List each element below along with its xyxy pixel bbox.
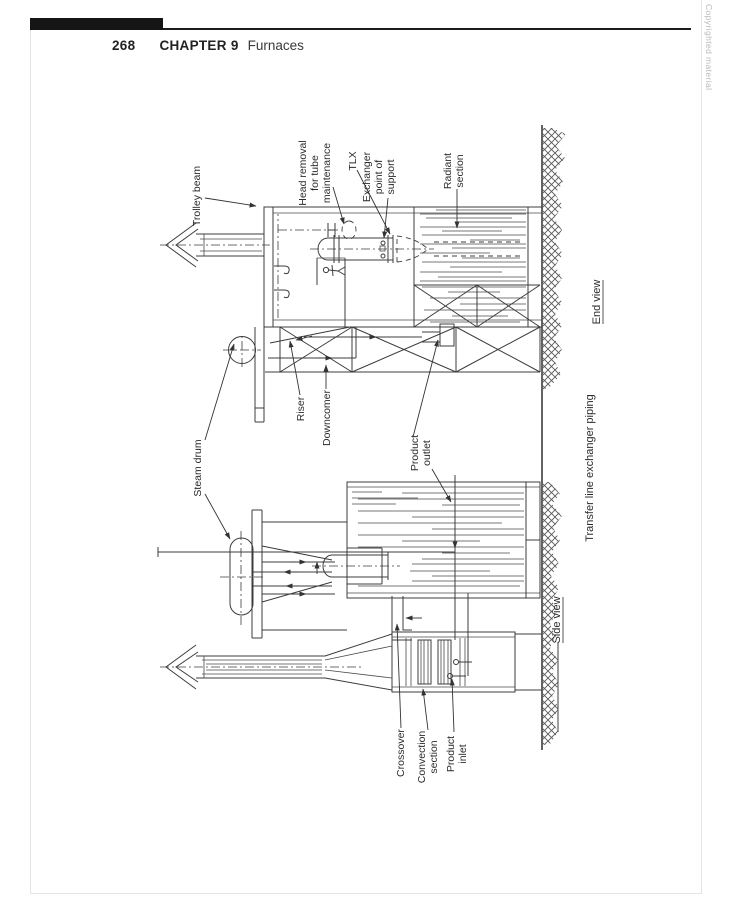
steam-drum-end	[223, 327, 264, 422]
svg-text:TLX: TLX	[347, 151, 359, 170]
page-edge-left	[30, 18, 31, 894]
end-view-caption: End view	[591, 280, 603, 325]
label-head-removal: Head removal for tube maintenance	[297, 140, 344, 224]
svg-text:maintenance: maintenance	[321, 143, 333, 203]
ground-hatch-end-view	[543, 128, 566, 390]
svg-text:inlet: inlet	[457, 744, 469, 763]
label-trolley-beam: Trolley beam	[191, 166, 256, 227]
svg-text:Trolley beam: Trolley beam	[191, 166, 203, 227]
tlx-exchanger-side	[312, 548, 400, 584]
svg-text:section: section	[428, 740, 440, 773]
chapter-tab-bar	[30, 18, 163, 30]
end-view-piping	[268, 324, 454, 358]
radiant-tubes-side	[352, 492, 524, 586]
svg-text:Riser: Riser	[295, 396, 307, 421]
product-outlet-piping-side	[158, 475, 455, 640]
crossover-duct	[392, 596, 422, 640]
svg-text:Exchanger: Exchanger	[361, 151, 373, 202]
side-view	[158, 475, 542, 692]
furnace-diagram-svg: Trolley beam Head removal for tube maint…	[100, 110, 660, 790]
stack-end	[160, 223, 270, 267]
header-rule	[163, 28, 691, 30]
label-downcomer: Downcomer	[321, 365, 333, 446]
svg-text:Head removal: Head removal	[297, 140, 309, 205]
svg-text:Steam drum: Steam drum	[192, 439, 204, 496]
riser-downcomer-piping	[253, 546, 335, 602]
svg-text:Downcomer: Downcomer	[321, 389, 333, 446]
svg-text:support: support	[385, 159, 397, 194]
copyright-notice: Copyrighted material	[704, 4, 714, 90]
label-riser: Riser	[290, 341, 307, 421]
label-crossover: Crossover	[395, 624, 407, 777]
figure-caption: Transfer line exchanger piping	[584, 394, 596, 542]
svg-text:outlet: outlet	[421, 440, 433, 466]
person-figure	[323, 265, 345, 276]
svg-text:point of: point of	[373, 160, 385, 195]
end-view	[160, 207, 542, 422]
view-captions: End view Side view Transfer line exchang…	[551, 280, 603, 644]
side-view-caption: Side view	[551, 596, 563, 643]
ground	[542, 125, 566, 750]
label-exchanger-support: Exchanger point of support	[361, 151, 397, 238]
svg-text:for tube: for tube	[309, 155, 321, 191]
chapter-label: CHAPTER 9	[159, 38, 238, 53]
page-number: 268	[112, 38, 135, 53]
svg-text:section: section	[454, 154, 466, 187]
label-product-inlet: Product inlet	[445, 679, 469, 772]
label-steam-drum: Steam drum	[192, 344, 234, 539]
svg-text:Convection: Convection	[416, 731, 428, 784]
trolley-beam	[274, 214, 289, 318]
label-convection-section: Convection section	[416, 689, 440, 783]
chapter-title: Furnaces	[248, 38, 304, 53]
svg-text:Crossover: Crossover	[395, 729, 407, 777]
svg-text:Product: Product	[409, 435, 421, 471]
tlx-exchanger-end	[310, 235, 524, 263]
page-edge-right	[701, 0, 702, 894]
label-product-outlet: Product outlet	[409, 340, 451, 502]
svg-text:Radiant: Radiant	[442, 153, 454, 189]
stack-side	[160, 634, 392, 690]
steam-drum-side	[220, 510, 347, 638]
book-page: 268 CHAPTER 9 Furnaces Copyrighted mater…	[0, 0, 729, 900]
page-edge-bottom	[30, 893, 702, 894]
furnace-figure: Trolley beam Head removal for tube maint…	[100, 110, 660, 790]
label-radiant-section: Radiant section	[442, 153, 466, 228]
page-header: 268 CHAPTER 9 Furnaces	[112, 38, 304, 53]
svg-text:Product: Product	[445, 736, 457, 772]
